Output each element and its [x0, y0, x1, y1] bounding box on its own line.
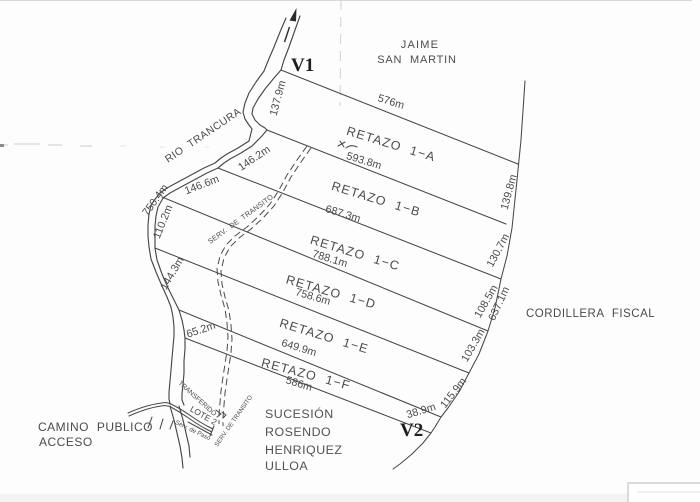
svg-text:V1: V1 [291, 55, 314, 76]
svg-text:V2: V2 [400, 420, 423, 441]
svg-text:ROSENDO: ROSENDO [265, 425, 331, 439]
svg-text:CAMINO PUBLICO: CAMINO PUBLICO [38, 420, 153, 434]
svg-text:SAN MARTIN: SAN MARTIN [377, 54, 457, 66]
svg-text:ULLOA: ULLOA [265, 459, 308, 473]
svg-text:CORDILLERA FISCAL: CORDILLERA FISCAL [526, 308, 655, 320]
svg-text:SUCESIÓN: SUCESIÓN [265, 406, 334, 421]
svg-text:ACCESO: ACCESO [39, 435, 93, 449]
svg-text:HENRIQUEZ: HENRIQUEZ [265, 443, 342, 457]
svg-text:JAIME: JAIME [401, 39, 439, 51]
